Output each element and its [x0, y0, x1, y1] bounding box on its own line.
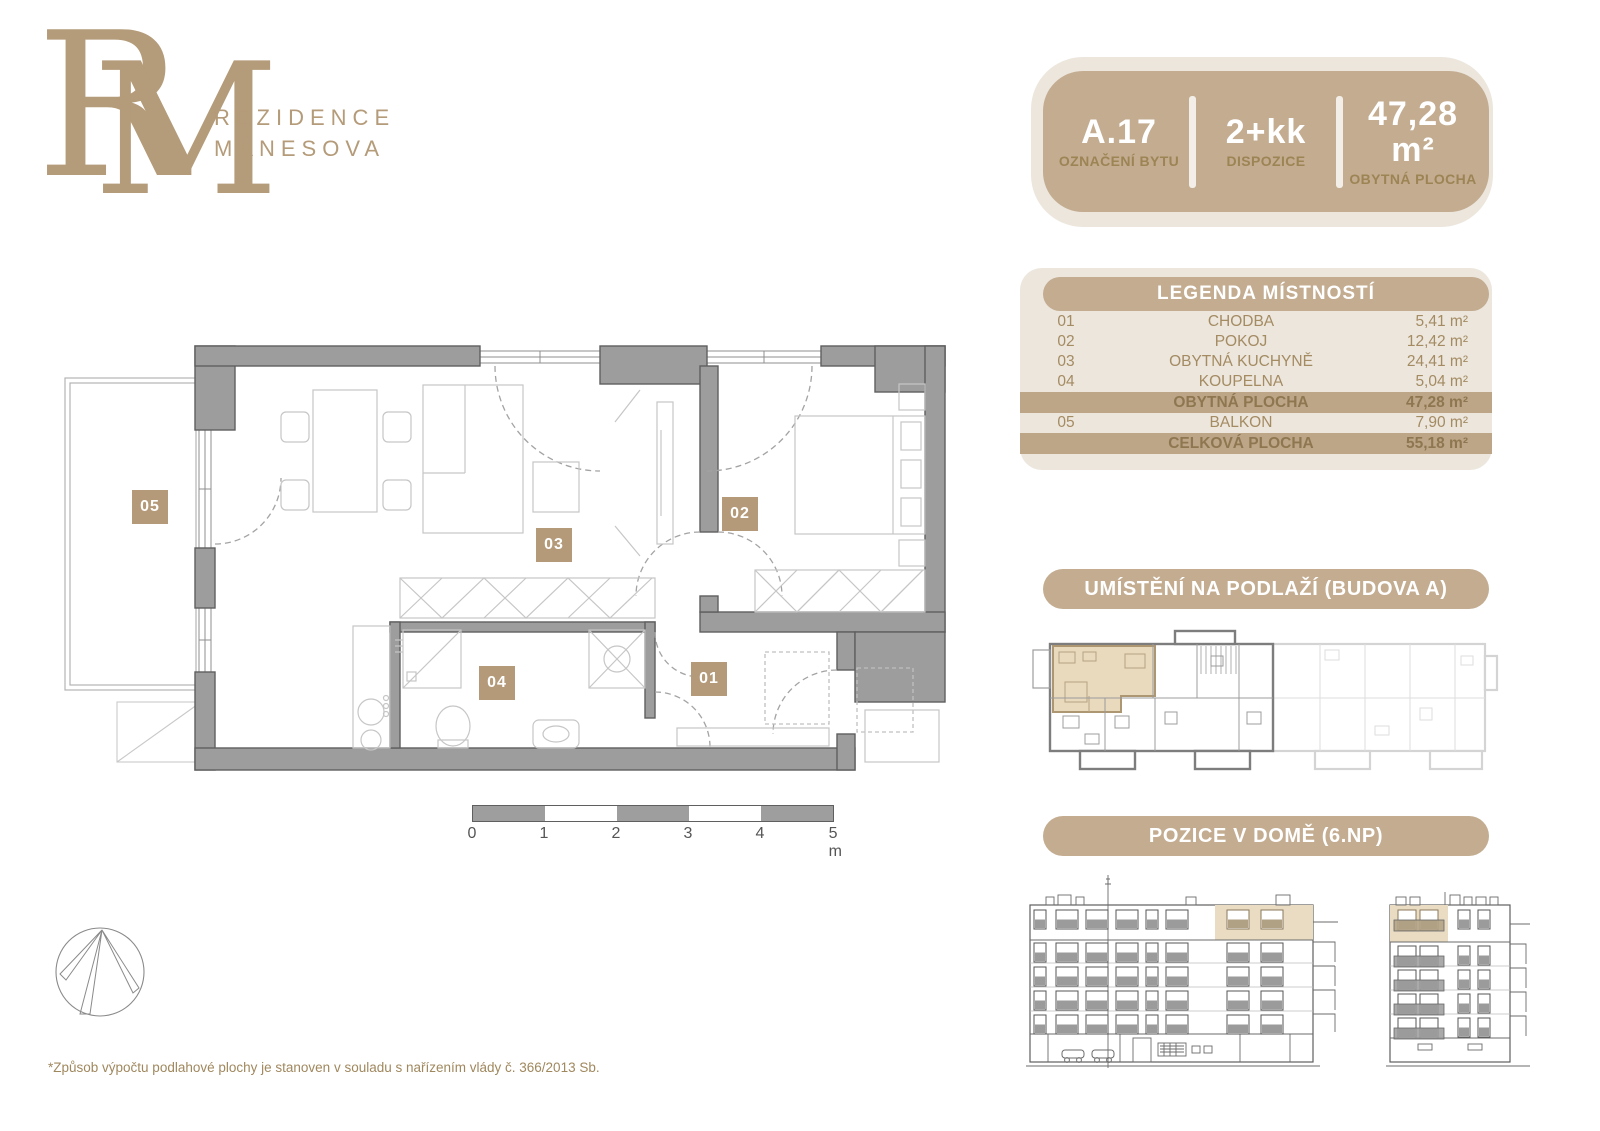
legend-cell: KOUPELNA [1112, 373, 1370, 391]
north-compass-icon [52, 922, 152, 1022]
legend-cell: 55,18 m² [1370, 435, 1492, 453]
legend-cell: 47,28 m² [1370, 394, 1492, 412]
furniture [281, 384, 939, 762]
scale-tick-label: 5 m [829, 825, 842, 861]
scale-segment [617, 806, 689, 821]
unit-layout-value: 2+kk [1196, 114, 1336, 150]
room-label-04: 04 [479, 666, 515, 700]
neighbour-balcony [117, 702, 201, 762]
building-elevations [990, 862, 1560, 1072]
unit-id-cell: A.17 OZNAČENÍ BYTU [1049, 114, 1189, 169]
scale-segment [761, 806, 833, 821]
card-divider [1336, 96, 1343, 188]
unit-layout-label: DISPOZICE [1196, 153, 1336, 169]
legend-cell: OBYTNÁ PLOCHA [1112, 394, 1370, 412]
section-house-position-title: POZICE V DOMĚ (6.NP) [1043, 816, 1489, 856]
unit-area-cell: 47,28 m² OBYTNÁ PLOCHA [1343, 96, 1483, 187]
legend-cell: 24,41 m² [1370, 353, 1492, 371]
room-label-05: 05 [132, 490, 168, 524]
legend-cell: 04 [1020, 373, 1112, 391]
room-label-02: 02 [722, 497, 758, 531]
legend-cell: 5,41 m² [1370, 313, 1492, 331]
card-divider [1189, 96, 1196, 188]
unit-area-label: OBYTNÁ PLOCHA [1343, 171, 1483, 187]
legend-cell: 7,90 m² [1370, 414, 1492, 432]
unit-area-value: 47,28 m² [1343, 96, 1483, 168]
legend-row: 04KOUPELNA5,04 m² [1020, 372, 1492, 392]
floorplan: 05 03 02 04 01 [55, 330, 965, 782]
brand-name: REZIDENCE MÁNESOVA [214, 102, 395, 164]
brand-line1: REZIDENCE [214, 102, 395, 133]
room-label-01: 01 [691, 662, 727, 696]
legend-row: 03OBYTNÁ KUCHYNĚ24,41 m² [1020, 352, 1492, 372]
legend-row: CELKOVÁ PLOCHA55,18 m² [1020, 433, 1492, 454]
legend-row: 01CHODBA5,41 m² [1020, 312, 1492, 332]
unit-layout-cell: 2+kk DISPOZICE [1196, 114, 1336, 169]
unit-id-value: A.17 [1049, 114, 1189, 150]
scale-segment [473, 806, 545, 821]
legend-table: 01CHODBA5,41 m²02POKOJ12,42 m²03OBYTNÁ K… [1020, 312, 1492, 454]
scale-tick-label: 1 [540, 825, 549, 843]
scale-bar-segments [472, 805, 834, 822]
legend-title: LEGENDA MÍSTNOSTÍ [1043, 277, 1489, 311]
room-label-03: 03 [536, 528, 572, 562]
scale-tick-label: 2 [612, 825, 621, 843]
legend-cell: 5,04 m² [1370, 373, 1492, 391]
legend-cell: 03 [1020, 353, 1112, 371]
legend-row: 02POKOJ12,42 m² [1020, 332, 1492, 352]
brand-logo: R M [36, 14, 226, 194]
legend-cell: CHODBA [1112, 313, 1370, 331]
legend-cell: 05 [1020, 414, 1112, 432]
unit-info-card-inner: A.17 OZNAČENÍ BYTU 2+kk DISPOZICE 47,28 … [1043, 71, 1489, 212]
legend-cell: 01 [1020, 313, 1112, 331]
legend-cell: POKOJ [1112, 333, 1370, 351]
unit-id-label: OZNAČENÍ BYTU [1049, 153, 1189, 169]
scale-tick-label: 3 [684, 825, 693, 843]
legend-row: 05BALKON7,90 m² [1020, 413, 1492, 433]
legend-row: OBYTNÁ PLOCHA47,28 m² [1020, 392, 1492, 413]
floor-location-plan [1025, 616, 1500, 781]
legend-cell: 02 [1020, 333, 1112, 351]
legend-cell: CELKOVÁ PLOCHA [1112, 435, 1370, 453]
legend-cell: 12,42 m² [1370, 333, 1492, 351]
scale-tick-label: 4 [756, 825, 765, 843]
balcony-outline [65, 378, 201, 690]
scale-segment [545, 806, 617, 821]
legend-cell: BALKON [1112, 414, 1370, 432]
floorplan-drawing [55, 330, 965, 782]
scale-bar: 012345 m [472, 805, 844, 849]
brand-line2: MÁNESOVA [214, 133, 395, 164]
scale-segment [689, 806, 761, 821]
section-floor-location-title: UMÍSTĚNÍ NA PODLAŽÍ (BUDOVA A) [1043, 569, 1489, 609]
legend-cell: OBYTNÁ KUCHYNĚ [1112, 353, 1370, 371]
scale-tick-label: 0 [468, 825, 477, 843]
footnote: *Způsob výpočtu podlahové plochy je stan… [48, 1060, 600, 1075]
brochure-page: R M REZIDENCE MÁNESOVA A.17 OZNAČENÍ BYT… [0, 0, 1600, 1131]
